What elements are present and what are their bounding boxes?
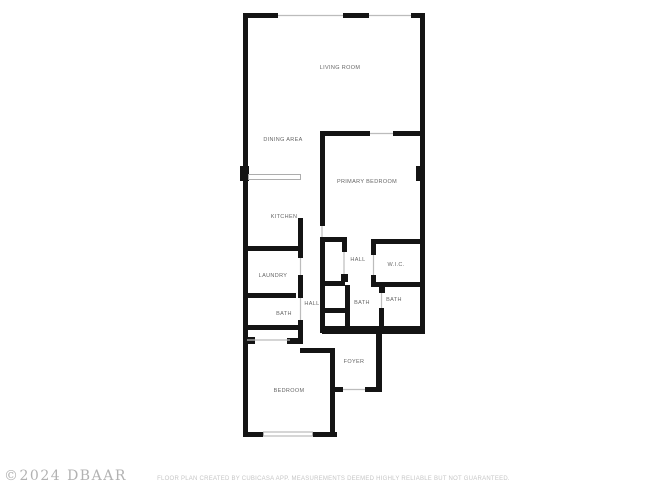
room-label-wic: W.I.C. <box>387 262 404 268</box>
room-label-primary-bedroom: PRIMARY BEDROOM <box>337 179 397 185</box>
floorplan-walls <box>0 0 667 500</box>
room-label-hall-upper: HALL <box>350 257 365 263</box>
room-label-bath-center: BATH <box>354 300 370 306</box>
floorplan-page: LIVING ROOMDINING AREAPRIMARY BEDROOMKIT… <box>0 0 667 500</box>
room-label-bedroom: BEDROOM <box>274 388 305 394</box>
exterior-walls <box>240 13 425 437</box>
room-label-bath-right: BATH <box>386 297 402 303</box>
disclaimer-text: FLOOR PLAN CREATED BY CUBICASA APP. MEAS… <box>0 476 667 482</box>
kitchen-counter <box>249 175 301 180</box>
interior-walls <box>243 131 420 353</box>
room-label-hall-lower: HALL <box>304 301 319 307</box>
room-label-foyer: FOYER <box>344 359 365 365</box>
room-label-bath-left: BATH <box>276 311 292 317</box>
room-label-living-room: LIVING ROOM <box>320 65 361 71</box>
room-label-laundry: LAUNDRY <box>259 273 288 279</box>
bedroom-window <box>264 432 313 436</box>
room-label-kitchen: KITCHEN <box>271 214 298 220</box>
room-label-dining-area: DINING AREA <box>263 137 302 143</box>
